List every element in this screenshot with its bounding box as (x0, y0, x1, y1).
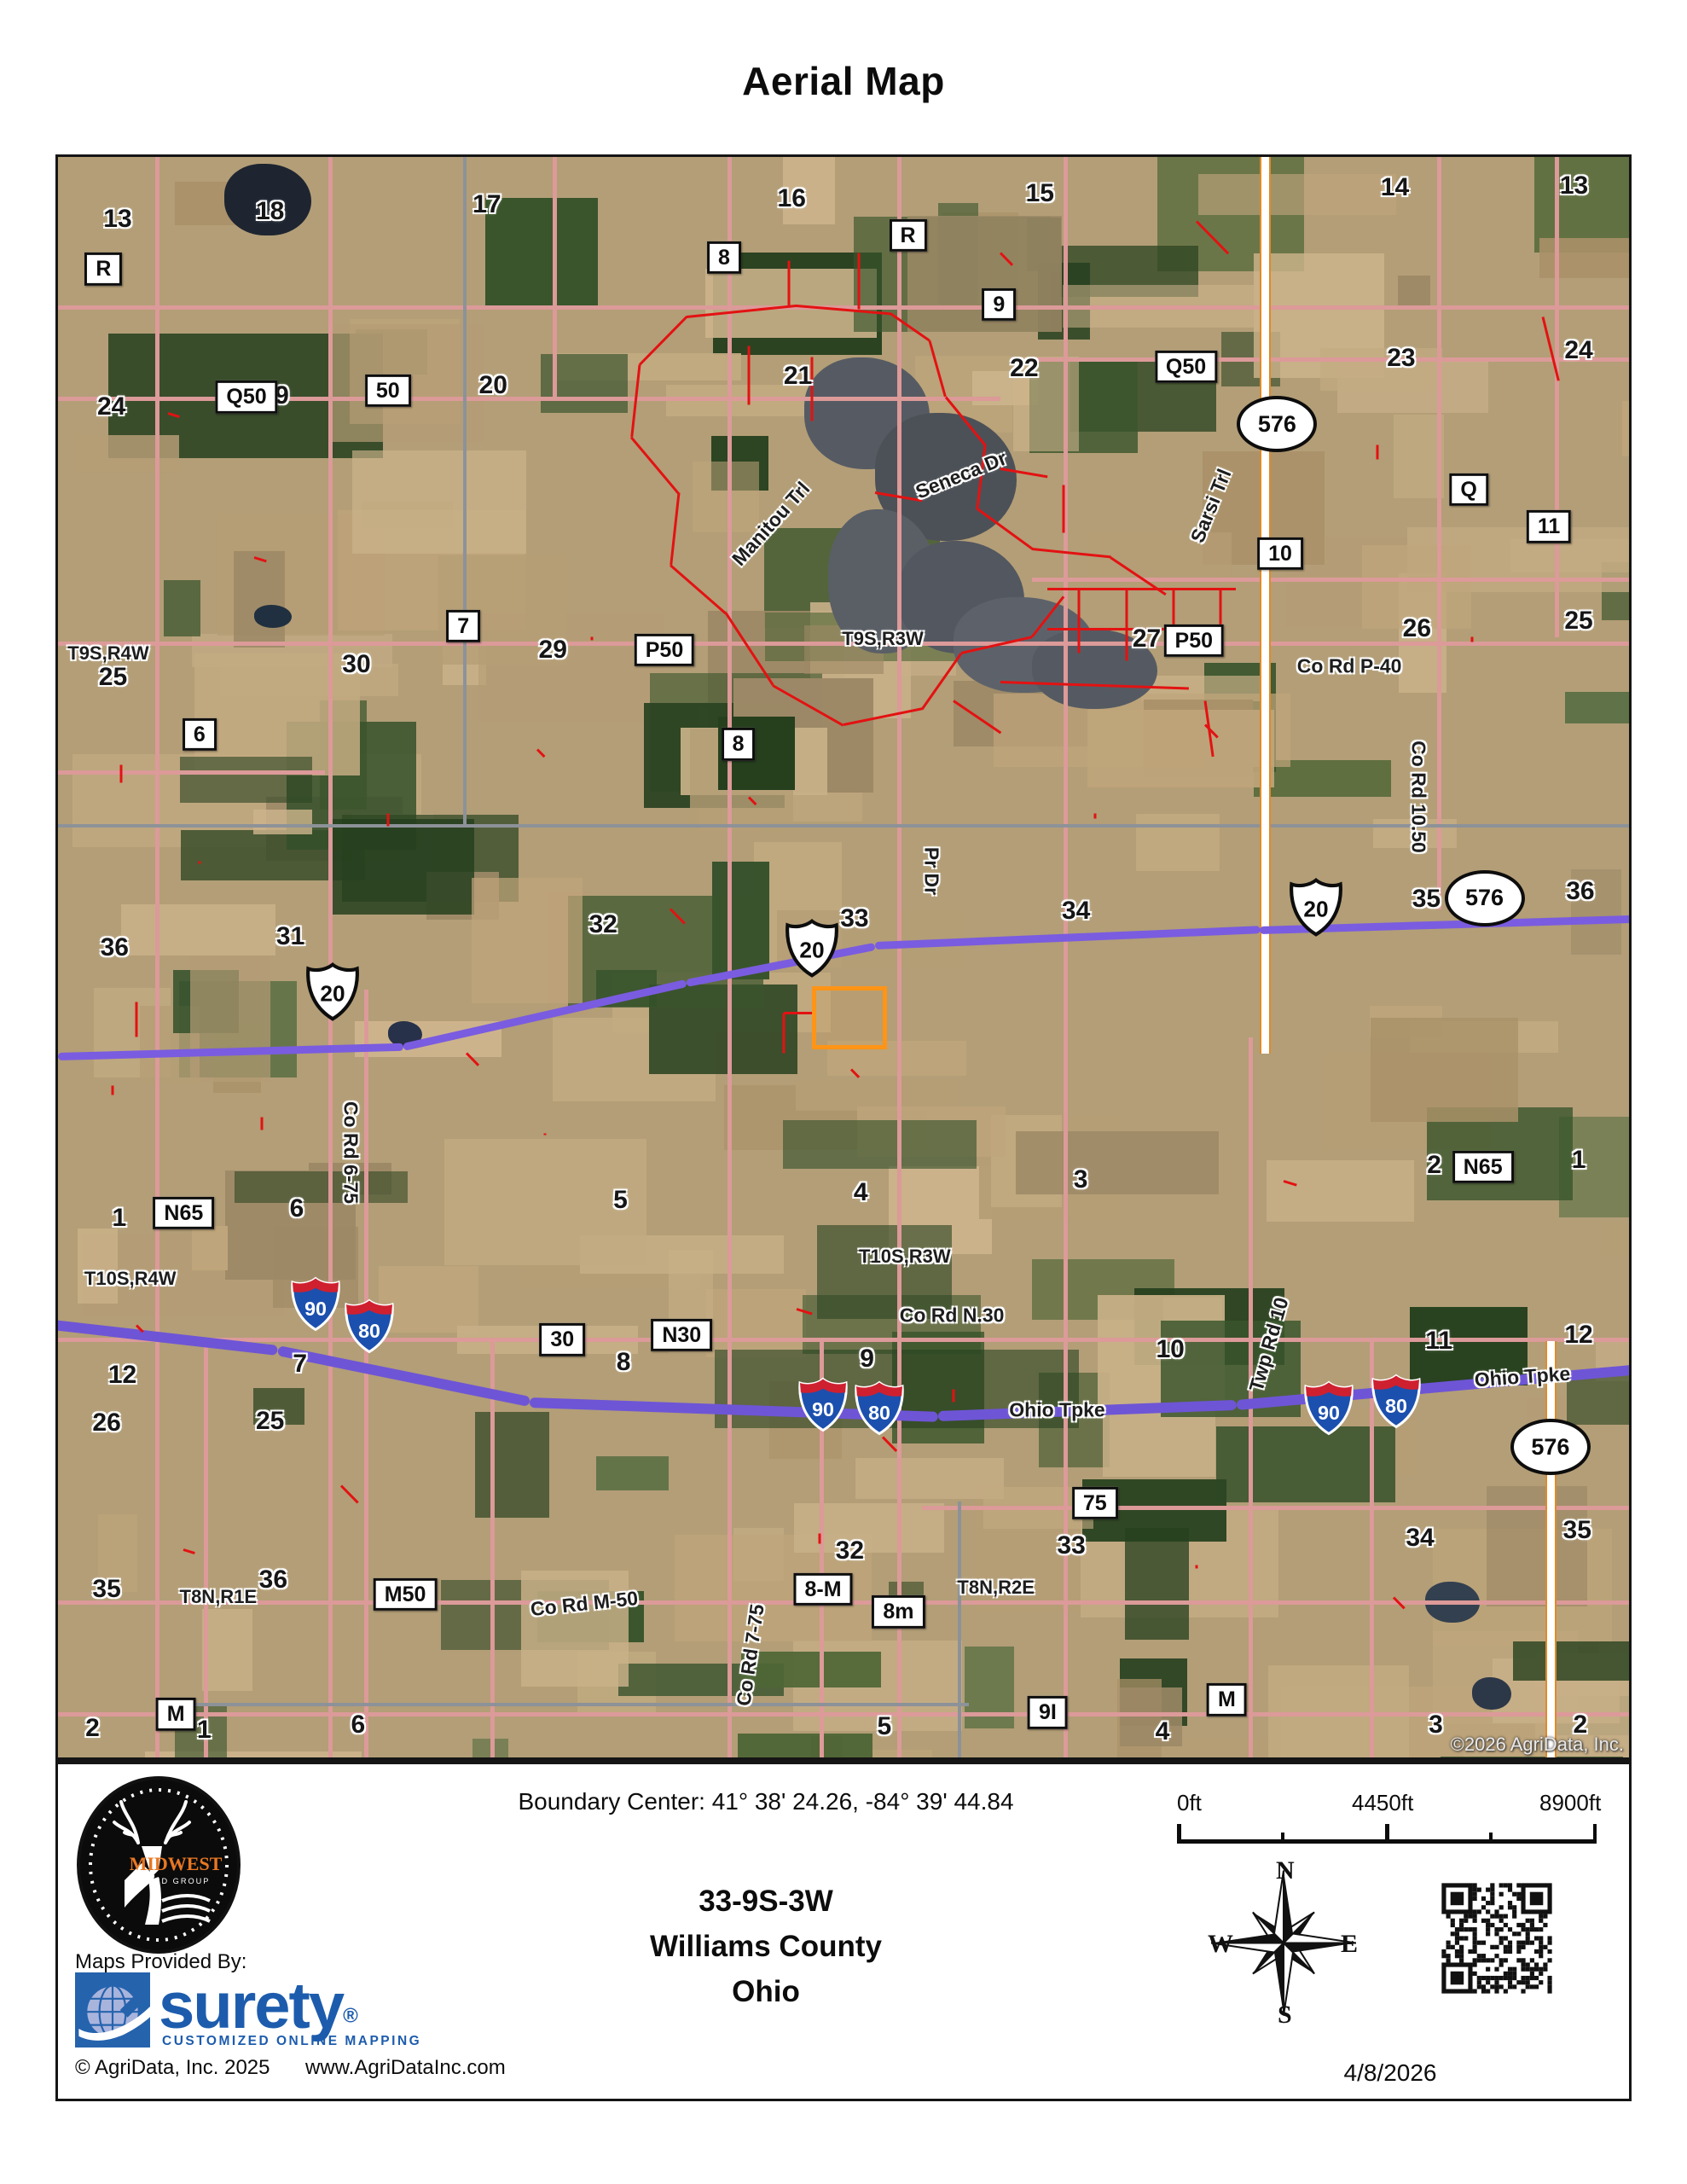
section-number: 10 (1156, 1335, 1184, 1364)
section-number: 9 (860, 1345, 874, 1374)
compass-rose: N E S W (1211, 1860, 1356, 2026)
interstate-shield: 80 (853, 1380, 906, 1440)
road-name-box-label: 75 (1072, 1487, 1118, 1519)
section-number: 32 (588, 910, 617, 939)
road-name-box-label: 7 (446, 610, 480, 642)
road-name-box-label: N65 (1452, 1151, 1514, 1183)
section-number: 3 (1074, 1165, 1088, 1194)
section-number: 36 (1566, 877, 1594, 906)
township-range-section: 33-9S-3W (339, 1879, 1192, 1924)
scale-bar: 0ft 4450ft 8900ft (1177, 1790, 1603, 1850)
interstate-shield: 80 (343, 1298, 396, 1359)
aerial-map-page: Aerial Map 13181716151413241920212223242… (0, 0, 1687, 2184)
section-number: 3 (1429, 1711, 1443, 1740)
map-copyright: ©2026 AgriData, Inc. (1451, 1734, 1624, 1756)
svg-text:80: 80 (868, 1402, 890, 1424)
section-number: 2 (85, 1714, 100, 1743)
section-number: 21 (784, 362, 812, 391)
section-number: 32 (836, 1536, 864, 1565)
section-number: 5 (878, 1712, 892, 1741)
agridata-url[interactable]: www.AgriDataInc.com (305, 2056, 506, 2080)
section-number: 25 (1564, 607, 1592, 636)
road-name-label: Ohio Tpke (1474, 1362, 1571, 1391)
section-number: 36 (259, 1565, 287, 1594)
road-name-box-label: M50 (374, 1578, 438, 1611)
compass-east-label: E (1341, 1930, 1358, 1959)
road-name-label: Co Rd 6-75 (339, 1101, 362, 1204)
section-number: 26 (92, 1409, 120, 1438)
road-name-label: Seneca Dr (913, 447, 1010, 504)
road-name-box-label: Q50 (1155, 351, 1217, 383)
section-number: 5 (613, 1186, 628, 1215)
midwest-land-group-logo: MIDWEST LAND GROUP (73, 1774, 244, 1955)
road-name-label: T8N,R2E (957, 1577, 1034, 1599)
road-name-box-label: 8m (872, 1595, 925, 1628)
section-number: 35 (1412, 885, 1441, 914)
compass-north-label: N (1276, 1856, 1295, 1885)
section-number: 16 (778, 184, 806, 213)
section-number: 17 (472, 190, 501, 219)
scale-start-label: 0ft (1177, 1790, 1202, 1816)
map-date: 4/8/2026 (1296, 2059, 1484, 2087)
section-number: 34 (1406, 1524, 1434, 1553)
qr-code[interactable] (1433, 1870, 1561, 2007)
section-number: 24 (1564, 336, 1592, 365)
road-name-box-label: 9 (982, 288, 1016, 320)
section-number: 1 (112, 1204, 126, 1233)
us-route-shield: 20 (1289, 877, 1343, 941)
section-number: 12 (1564, 1321, 1592, 1350)
footer-panel: MIDWEST LAND GROUP Maps Provided By: (55, 1760, 1632, 2101)
road-name-box-label: M (156, 1698, 196, 1730)
map-labels: 1318171615141324192021222324253029272625… (58, 157, 1629, 1757)
road-name-box-label: 8 (722, 728, 756, 760)
section-number: 12 (108, 1361, 136, 1390)
section-number: 8 (617, 1348, 631, 1377)
svg-text:20: 20 (800, 938, 825, 963)
state-route-oval-shield: 576 (1510, 1419, 1591, 1475)
road-name-box-label: R (889, 219, 926, 252)
section-number: 14 (1381, 173, 1409, 202)
interstate-shield: 80 (1370, 1374, 1423, 1434)
compass-west-label: W (1208, 1930, 1233, 1959)
road-name-label: Co Rd 7-75 (733, 1603, 769, 1708)
section-number: 33 (840, 904, 868, 933)
road-name-label: Ohio Tpke (1009, 1398, 1104, 1421)
section-number: 1 (197, 1716, 212, 1745)
section-number: 31 (276, 922, 304, 951)
road-name-box-label: 8 (707, 241, 741, 274)
road-name-box-label: N65 (153, 1197, 214, 1229)
road-name-box-label: 11 (1527, 510, 1571, 543)
svg-text:80: 80 (1385, 1395, 1407, 1417)
road-name-box-label: R (84, 253, 122, 285)
section-number: 27 (1133, 624, 1161, 653)
section-number: 35 (1563, 1516, 1591, 1545)
surety-tagline: CUSTOMIZED ONLINE MAPPING (162, 2034, 421, 2049)
road-name-label: T9S,R4W (67, 642, 148, 665)
section-number: 36 (101, 933, 129, 962)
aerial-map-canvas[interactable]: 1318171615141324192021222324253029272625… (55, 154, 1632, 1760)
page-title: Aerial Map (0, 58, 1687, 104)
svg-text:80: 80 (358, 1320, 380, 1342)
scale-end-label: 8900ft (1539, 1790, 1601, 1816)
road-name-label: Co Rd N.30 (900, 1304, 1005, 1327)
svg-text:LAND GROUP: LAND GROUP (142, 1877, 211, 1885)
road-name-label: Twp Rd 10 (1245, 1295, 1294, 1394)
section-number: 2 (1427, 1151, 1441, 1180)
compass-south-label: S (1278, 2001, 1292, 2030)
road-name-box-label: 30 (539, 1323, 585, 1356)
section-number: 4 (854, 1178, 868, 1207)
agridata-copyright: © AgriData, Inc. 2025 (75, 2056, 270, 2080)
road-name-box-label: 50 (365, 375, 411, 407)
road-name-box-label: N30 (651, 1319, 712, 1351)
svg-text:MIDWEST: MIDWEST (130, 1853, 223, 1874)
road-name-box-label: M (1207, 1683, 1247, 1716)
svg-text:90: 90 (812, 1398, 834, 1420)
section-number: 34 (1062, 897, 1090, 926)
road-name-label: Co Rd 10.50 (1407, 741, 1430, 854)
surety-wordmark: surety® (159, 1974, 358, 2039)
road-name-box-label: P50 (635, 634, 694, 666)
section-number: 33 (1057, 1531, 1085, 1560)
road-name-box-label: P50 (1164, 624, 1224, 656)
road-name-label: Sarsi Trl (1186, 466, 1236, 546)
road-name-box-label: 9I (1028, 1696, 1068, 1728)
map-sheet: 1318171615141324192021222324253029272625… (55, 154, 1632, 2101)
svg-text:90: 90 (1318, 1402, 1340, 1424)
svg-text:20: 20 (321, 981, 345, 1007)
section-number: 35 (92, 1575, 120, 1604)
scale-mid-label: 4450ft (1352, 1790, 1413, 1816)
us-route-shield: 20 (305, 962, 360, 1026)
section-number: 26 (1403, 614, 1431, 643)
us-route-shield: 20 (785, 919, 839, 983)
section-number: 13 (1560, 171, 1588, 200)
surety-globe-icon (75, 1972, 150, 2047)
interstate-shield: 90 (1302, 1380, 1355, 1440)
road-name-box-label: Q (1449, 473, 1487, 506)
section-number: 7 (293, 1350, 307, 1379)
road-name-box-label: 6 (183, 718, 217, 751)
road-name-label: Co Rd M-50 (530, 1587, 640, 1621)
interstate-shield: 90 (289, 1275, 342, 1336)
road-name-box-label: 8-M (794, 1573, 853, 1606)
section-number: 6 (290, 1194, 304, 1223)
section-number: 23 (1387, 344, 1415, 373)
section-number: 25 (256, 1407, 284, 1436)
section-number: 18 (256, 197, 284, 226)
section-number: 4 (1156, 1717, 1170, 1746)
interstate-shield: 90 (797, 1377, 849, 1438)
road-name-label: T9S,R3W (842, 628, 923, 650)
section-number: 6 (351, 1711, 365, 1740)
road-name-box-label: Q50 (215, 380, 277, 413)
section-number: 1 (1572, 1146, 1586, 1175)
boundary-center-text: Boundary Center: 41° 38' 24.26, -84° 39'… (339, 1788, 1192, 1815)
section-number: 30 (342, 650, 370, 679)
road-name-label: Manitou Trl (728, 477, 815, 570)
road-name-label: Pr Dr (920, 847, 943, 895)
section-number: 29 (539, 636, 567, 665)
section-number: 22 (1010, 354, 1038, 383)
section-number: 24 (97, 392, 125, 421)
state-route-oval-shield: 576 (1445, 870, 1525, 926)
road-name-label: T10S,R4W (84, 1268, 177, 1290)
section-number: 15 (1026, 179, 1054, 208)
road-name-label: Co Rd P-40 (1297, 654, 1402, 677)
section-number: 25 (99, 663, 127, 692)
svg-text:20: 20 (1304, 896, 1329, 921)
state-route-oval-shield: 576 (1237, 396, 1317, 452)
section-number: 13 (103, 205, 131, 234)
county-name: Williams County (339, 1924, 1192, 1969)
road-name-label: T8N,R1E (180, 1586, 257, 1608)
svg-text:90: 90 (304, 1298, 327, 1320)
state-name: Ohio (339, 1969, 1192, 2014)
road-name-box-label: 10 (1257, 537, 1303, 570)
location-block: 33-9S-3W Williams County Ohio (339, 1879, 1192, 2014)
section-number: 11 (1425, 1327, 1452, 1356)
section-number: 20 (479, 371, 507, 400)
road-name-label: T10S,R3W (859, 1246, 951, 1268)
